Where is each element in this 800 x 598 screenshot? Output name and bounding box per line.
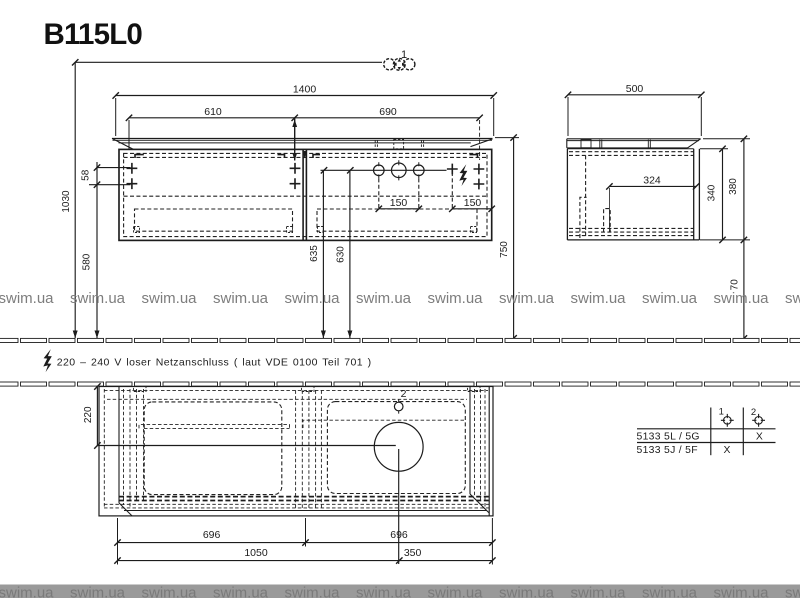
svg-text:swim.ua: swim.ua	[285, 585, 341, 598]
svg-text:750: 750	[499, 241, 510, 258]
svg-text:580: 580	[82, 253, 93, 270]
svg-text:1030: 1030	[61, 190, 72, 213]
svg-text:380: 380	[728, 178, 739, 195]
svg-text:swim.ua: swim.ua	[428, 585, 484, 598]
svg-text:swim.ua: swim.ua	[356, 585, 412, 598]
svg-text:swim.ua: swim.ua	[571, 585, 627, 598]
svg-text:690: 690	[379, 106, 397, 118]
svg-text:swim.ua: swim.ua	[213, 290, 269, 307]
svg-text:58: 58	[80, 169, 91, 181]
svg-text:350: 350	[404, 547, 422, 559]
svg-text:swim.ua: swim.ua	[285, 290, 341, 307]
svg-text:swim.ua: swim.ua	[0, 585, 54, 598]
svg-text:swim.ua: swim.ua	[499, 585, 555, 598]
svg-text:2: 2	[751, 407, 756, 418]
svg-text:swim.ua: swim.ua	[70, 585, 126, 598]
svg-text:1400: 1400	[293, 84, 317, 96]
svg-text:5133 5J / 5F: 5133 5J / 5F	[637, 445, 698, 456]
svg-text:630: 630	[336, 246, 347, 263]
svg-text:2: 2	[401, 388, 407, 400]
svg-text:swim.ua: swim.ua	[499, 290, 555, 307]
svg-text:X: X	[756, 431, 763, 442]
svg-text:5133 5L / 5G: 5133 5L / 5G	[637, 432, 700, 443]
svg-text:swim.ua: swim.ua	[642, 585, 698, 598]
svg-text:1050: 1050	[244, 547, 268, 559]
svg-text:220 – 240 V loser Netzanschlus: 220 – 240 V loser Netzanschluss ( laut V…	[57, 357, 372, 369]
svg-text:150: 150	[390, 197, 408, 209]
svg-text:340: 340	[707, 184, 718, 201]
svg-text:696: 696	[203, 529, 221, 541]
svg-text:swim.ua: swim.ua	[785, 585, 800, 598]
svg-text:swim.ua: swim.ua	[571, 290, 627, 307]
svg-text:B115L0: B115L0	[44, 18, 143, 51]
svg-text:swim.ua: swim.ua	[642, 290, 698, 307]
svg-text:swim.ua: swim.ua	[213, 585, 269, 598]
svg-text:1: 1	[719, 407, 724, 418]
svg-text:150: 150	[464, 197, 482, 209]
svg-text:swim.ua: swim.ua	[714, 585, 770, 598]
svg-text:70: 70	[730, 279, 741, 291]
svg-text:696: 696	[390, 529, 408, 541]
svg-text:swim.ua: swim.ua	[714, 290, 770, 307]
svg-text:610: 610	[204, 106, 222, 118]
svg-text:swim.ua: swim.ua	[142, 290, 198, 307]
svg-text:swim.ua: swim.ua	[785, 290, 800, 307]
svg-text:swim.ua: swim.ua	[70, 290, 126, 307]
svg-text:swim.ua: swim.ua	[0, 290, 54, 307]
svg-text:swim.ua: swim.ua	[428, 290, 484, 307]
svg-text:220: 220	[83, 406, 94, 423]
svg-text:500: 500	[626, 83, 644, 95]
svg-text:324: 324	[643, 174, 661, 186]
svg-text:swim.ua: swim.ua	[356, 290, 412, 307]
svg-text:635: 635	[309, 245, 320, 262]
svg-text:swim.ua: swim.ua	[142, 585, 198, 598]
svg-text:X: X	[724, 445, 731, 456]
